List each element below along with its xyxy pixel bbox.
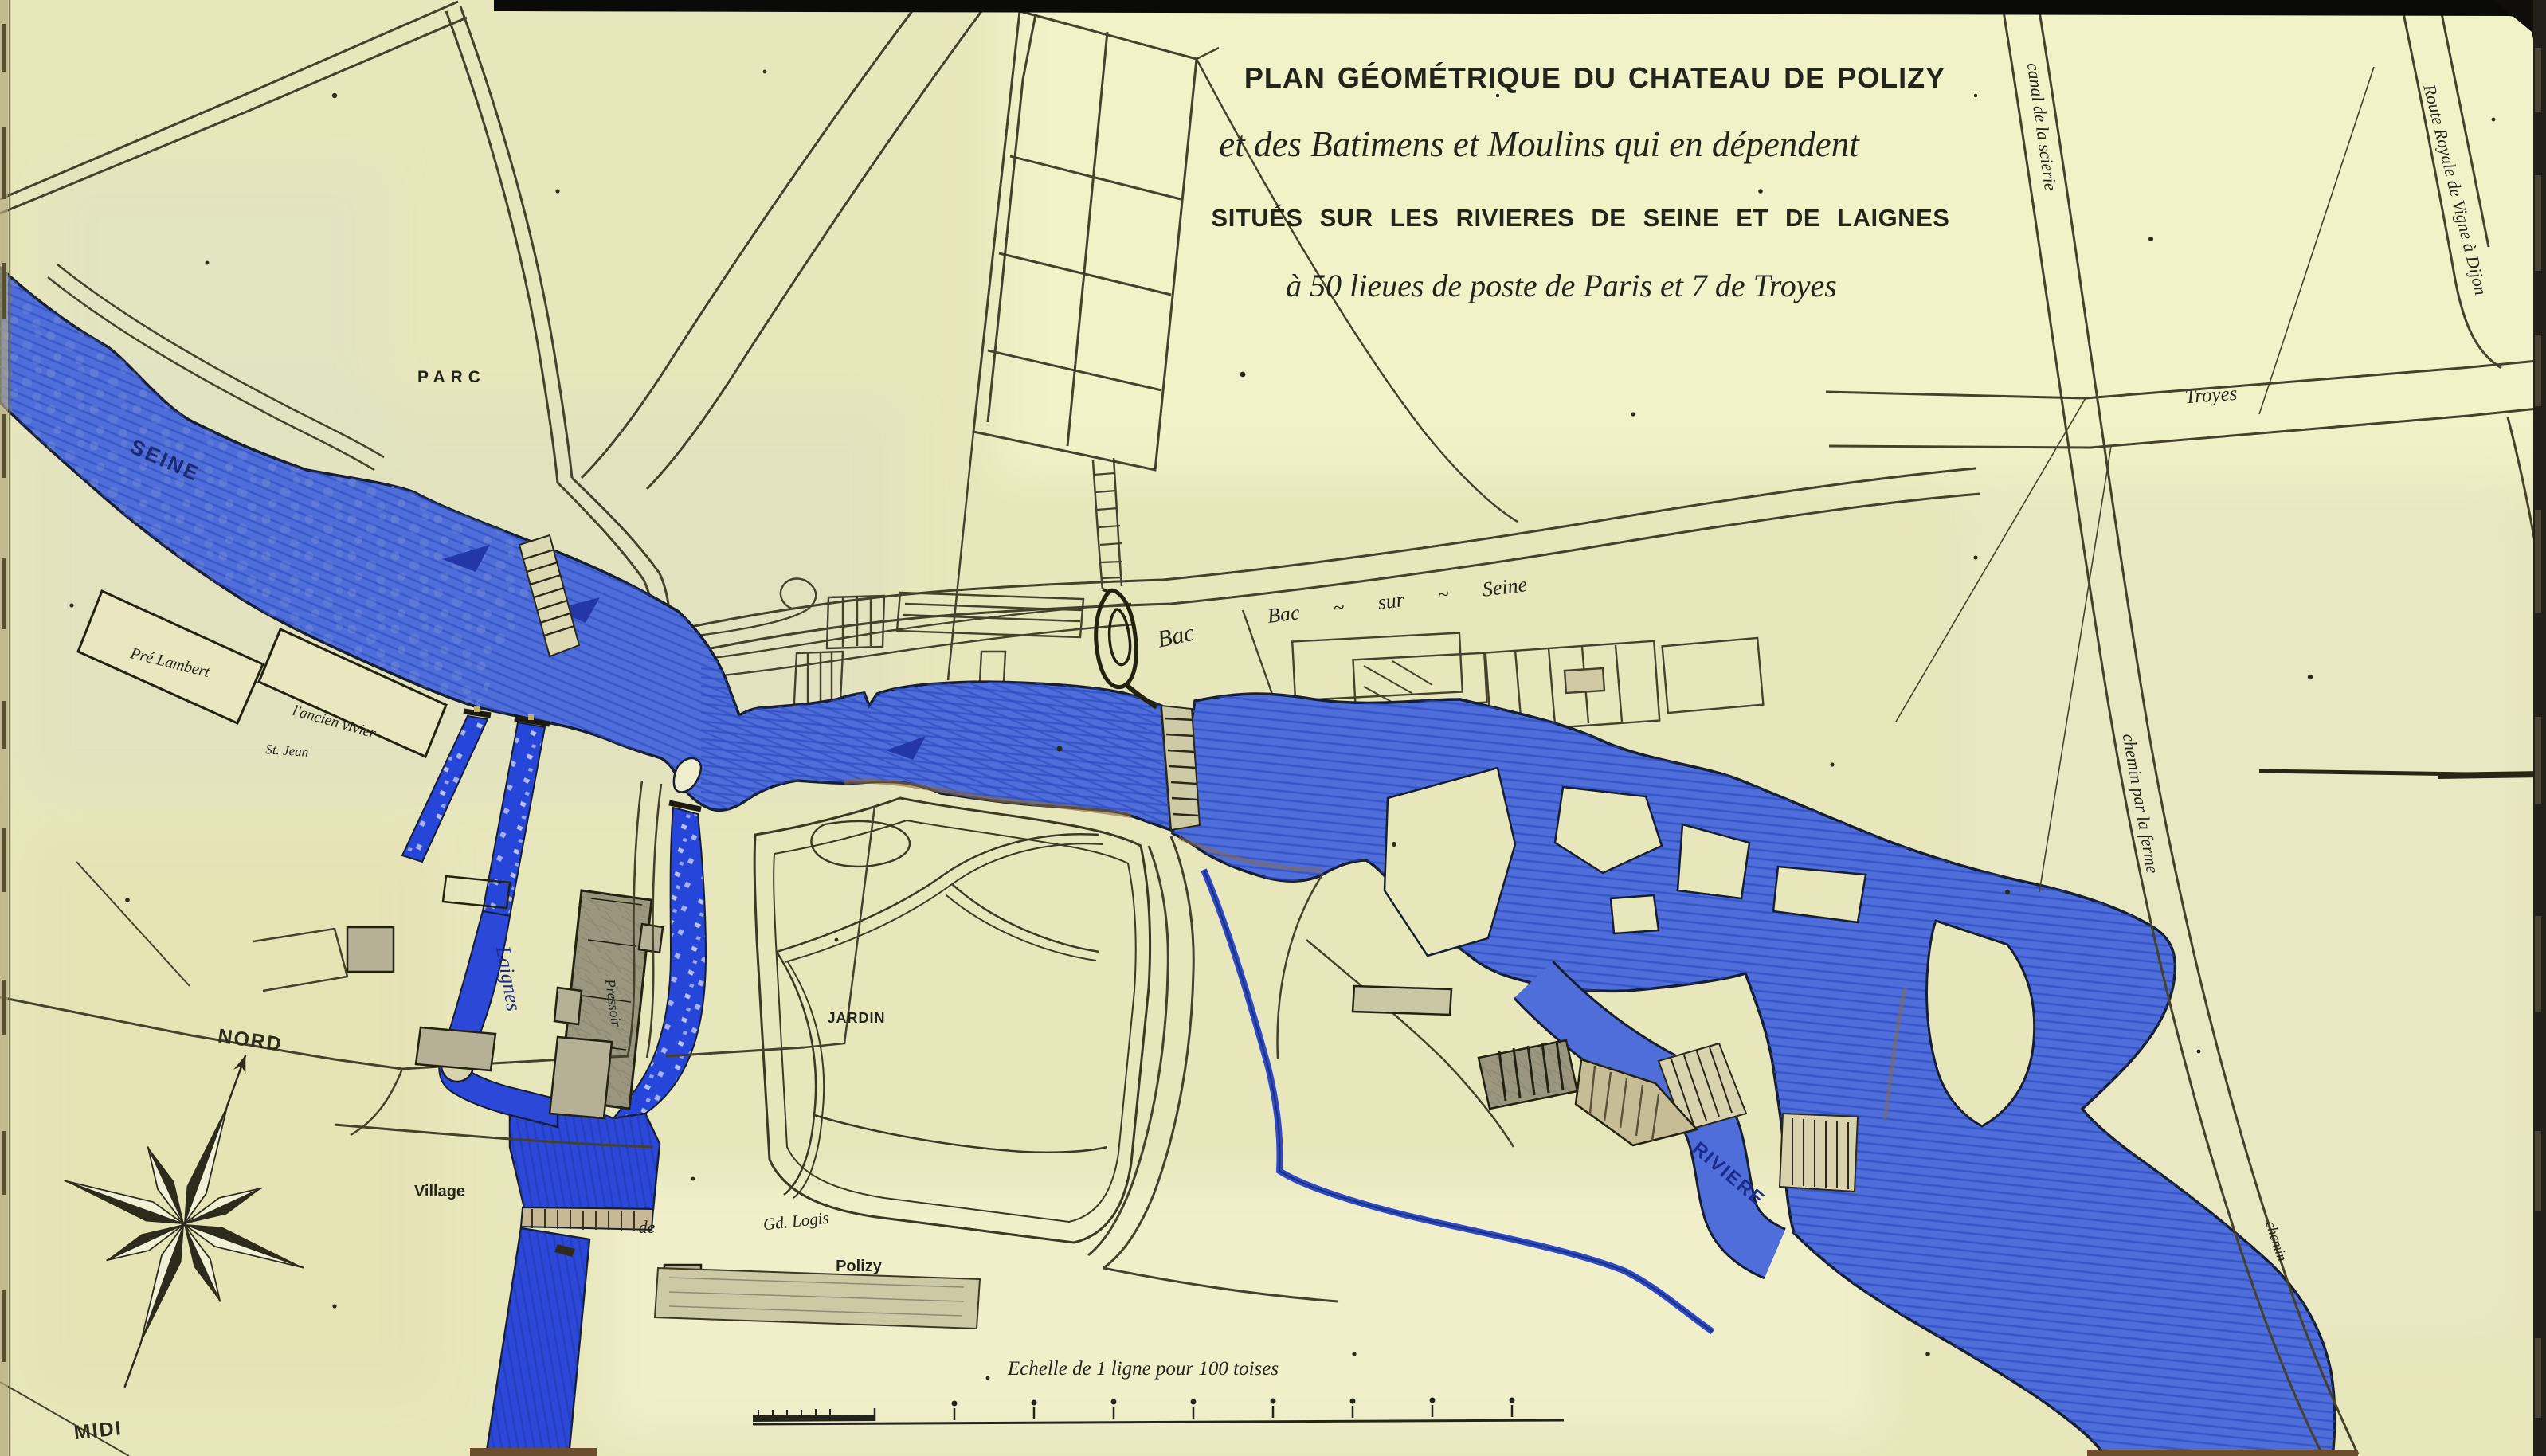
svg-text:à 50 lieues de poste de Paris: à 50 lieues de poste de Paris et 7 de Tr… xyxy=(1286,268,1837,303)
svg-text:et des Batimens et Moulins qui: et des Batimens et Moulins qui en dépend… xyxy=(1219,124,1860,164)
svg-text:PLAN GÉOMÉTRIQUE DU CHATEAU DE: PLAN GÉOMÉTRIQUE DU CHATEAU DE POLIZY xyxy=(1244,61,1945,94)
svg-text:de: de xyxy=(639,1217,656,1237)
svg-text:SITUÉS SUR LES RIVIERES DE SEI: SITUÉS SUR LES RIVIERES DE SEINE ET DE L… xyxy=(1212,204,1950,232)
svg-text:St. Jean: St. Jean xyxy=(265,742,309,760)
svg-text:Village: Village xyxy=(414,1183,465,1200)
svg-text:JARDIN: JARDIN xyxy=(827,1010,885,1026)
svg-text:PARC: PARC xyxy=(417,368,486,386)
svg-text:Echelle de 1 ligne pour 100 to: Echelle de 1 ligne pour 100 toises xyxy=(1007,1358,1279,1380)
svg-text:Polizy: Polizy xyxy=(836,1258,883,1275)
